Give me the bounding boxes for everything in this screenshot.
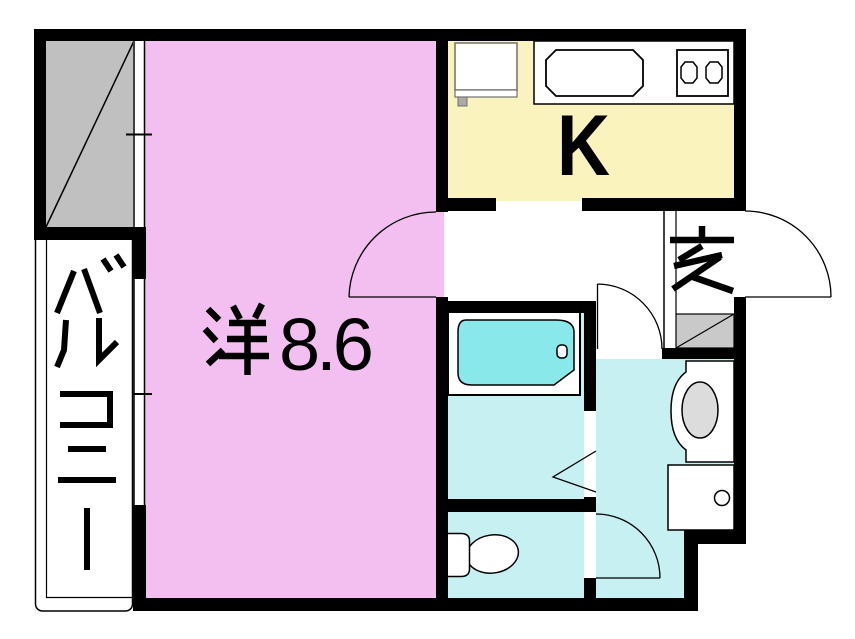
- svg-text:8.6: 8.6: [279, 303, 371, 386]
- svg-text:K: K: [557, 98, 610, 194]
